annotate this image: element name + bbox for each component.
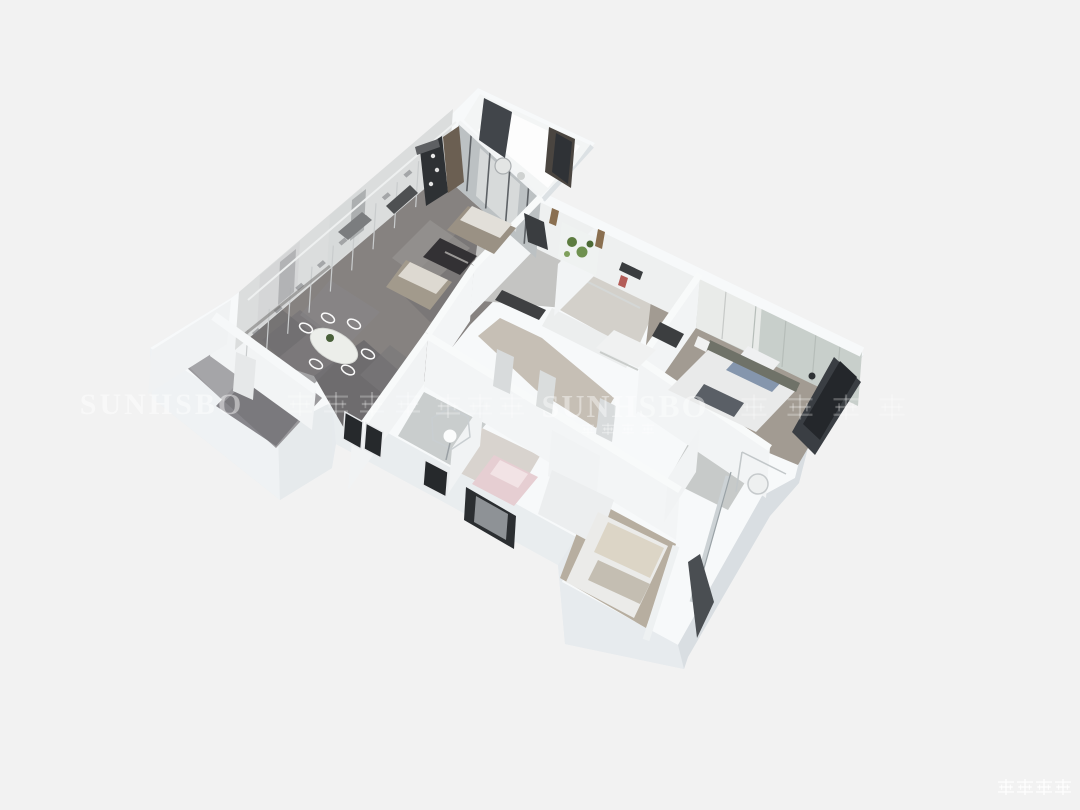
svg-text:SUNHSBO: SUNHSBO xyxy=(80,388,244,421)
svg-text:SUNHSBO: SUNHSBO xyxy=(542,388,709,424)
